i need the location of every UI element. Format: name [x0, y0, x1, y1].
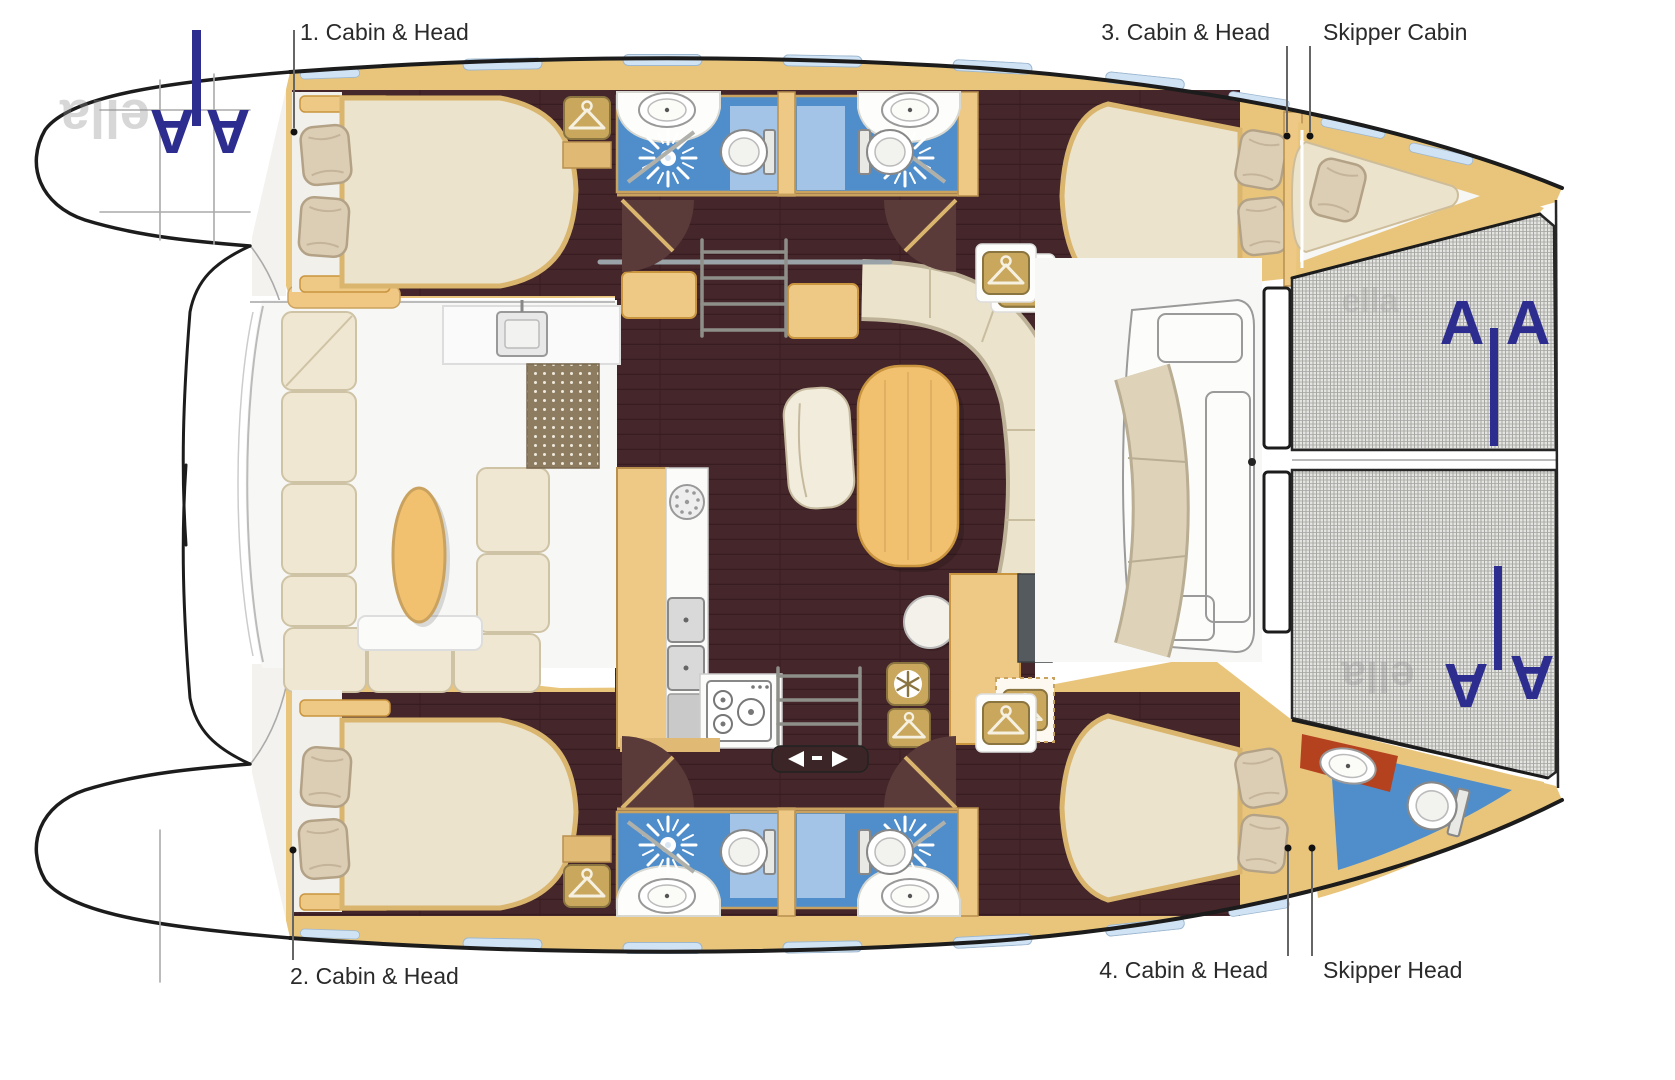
sink-icon — [882, 93, 938, 127]
cabinet — [788, 284, 858, 338]
sink-icon — [882, 879, 938, 913]
bed-double — [342, 720, 576, 908]
logo-letter: A — [1444, 650, 1489, 719]
hanger-icon — [888, 709, 930, 747]
label-cabin-2: 2. Cabin & Head — [290, 963, 459, 989]
heads-forward-starboard — [617, 808, 978, 916]
shower-icon — [640, 817, 696, 873]
toilet-icon — [721, 830, 775, 874]
pillow-icon — [300, 746, 352, 807]
forward-cockpit — [1035, 258, 1290, 662]
galley-wood-counter — [617, 468, 668, 748]
mast-beam — [1264, 288, 1290, 448]
logo-bar — [1494, 566, 1502, 670]
saloon-stool — [904, 596, 956, 648]
saloon-chair — [782, 386, 856, 510]
label-cabin-3: 3. Cabin & Head — [1101, 19, 1270, 45]
heads-forward-port — [617, 92, 978, 196]
label-skipper-cabin: Skipper Cabin — [1323, 19, 1467, 45]
nonskid-mat — [527, 364, 599, 468]
leader-dot — [1309, 845, 1316, 852]
pillow-icon — [1233, 128, 1288, 191]
pillow-icon — [300, 124, 353, 186]
hanger-icon — [983, 702, 1029, 744]
hanger-icon — [983, 252, 1029, 294]
leader-dot — [1285, 845, 1292, 852]
cockpit — [238, 286, 620, 692]
label-cabin-4: 4. Cabin & Head — [1099, 957, 1268, 983]
bed-double — [342, 98, 576, 286]
pillow-icon — [1237, 196, 1289, 256]
galley-drainboard — [668, 694, 704, 742]
mast-step — [1248, 458, 1256, 466]
leader-dot — [1307, 133, 1314, 140]
pillow-icon — [1237, 814, 1289, 874]
leader-dot — [291, 129, 298, 136]
leader-dot — [290, 847, 297, 854]
floor-plan-drawing: A A ella A A ella A A ella 1. Cabin & He… — [0, 0, 1675, 1080]
forward-bench — [1142, 372, 1161, 650]
bed-double — [1062, 716, 1240, 900]
cockpit-table — [393, 488, 445, 622]
logo-letter: A — [1440, 289, 1485, 358]
watermark-text: ella — [59, 88, 150, 148]
shower-stall — [797, 814, 845, 898]
snowflake-icon — [887, 663, 929, 705]
logo-letter: A — [1510, 642, 1555, 711]
catamaran-floor-plan: A A ella A A ella A A ella 1. Cabin & He… — [0, 0, 1675, 1080]
toilet-icon — [721, 130, 775, 174]
pillow-icon — [1233, 747, 1288, 810]
hanger-icon — [564, 865, 610, 907]
leader-dot — [1284, 133, 1291, 140]
mast-beam — [1264, 472, 1290, 632]
logo-letter: A — [150, 96, 195, 165]
hanger-icon — [564, 97, 610, 139]
cabinet — [622, 272, 696, 318]
pillow-icon — [298, 818, 350, 879]
logo-letter: A — [1506, 289, 1551, 358]
toilet-icon — [859, 830, 913, 874]
toilet-icon — [859, 130, 913, 174]
logo-letter: A — [206, 96, 251, 165]
sink-icon — [639, 93, 695, 127]
watermark-text: ella — [1341, 652, 1415, 701]
watermark-text: ella — [1342, 282, 1400, 320]
pillow-icon — [298, 196, 350, 257]
logo-bar — [1490, 328, 1498, 446]
label-cabin-1: 1. Cabin & Head — [300, 19, 469, 45]
shower-stall — [797, 106, 845, 190]
stove-icon — [707, 681, 771, 741]
sink-icon — [639, 879, 695, 913]
label-skipper-head: Skipper Head — [1323, 957, 1462, 983]
